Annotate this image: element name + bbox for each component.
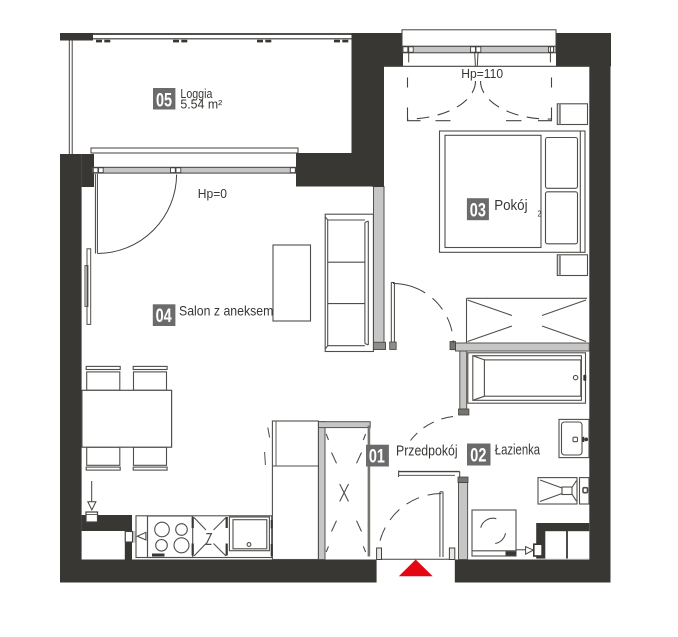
svg-text:Przedpokój: Przedpokój [396,443,458,459]
svg-text:Łazienka: Łazienka [495,441,541,458]
svg-text:05: 05 [156,89,172,110]
svg-text:01: 01 [369,446,385,467]
svg-text:02: 02 [470,445,486,466]
svg-text:Hp=110: Hp=110 [461,66,503,80]
svg-text:03: 03 [470,200,486,221]
svg-text:Salon z aneksem: Salon z aneksem [179,303,273,319]
svg-text:2: 2 [538,209,542,219]
svg-text:Pokój: Pokój [494,196,527,213]
svg-text:04: 04 [156,305,173,326]
svg-text:5.54 m²: 5.54 m² [180,97,222,111]
svg-text:Hp=0: Hp=0 [198,186,227,200]
